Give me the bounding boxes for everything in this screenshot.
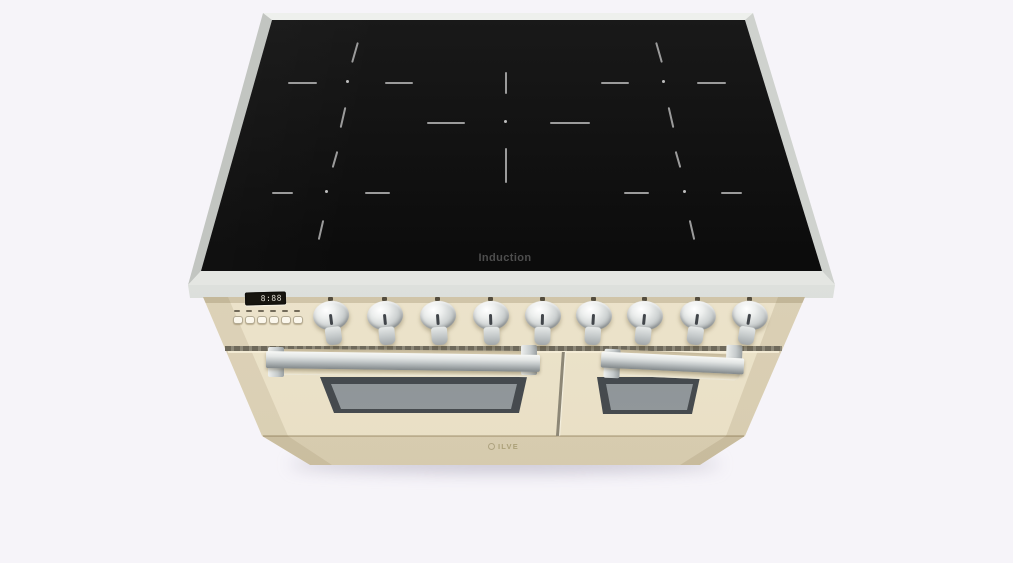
control-knob[interactable] <box>624 299 664 348</box>
zone-mark <box>272 192 293 194</box>
control-knob[interactable] <box>311 299 352 349</box>
panel-button[interactable] <box>245 316 255 324</box>
zone-mark <box>689 220 695 240</box>
panel-button[interactable] <box>269 316 279 324</box>
zone-mark <box>340 107 347 128</box>
button-icon <box>246 310 252 312</box>
zone-mark <box>365 192 390 194</box>
oven-clock-display: 8:88 <box>245 291 286 305</box>
control-knob[interactable] <box>524 301 561 348</box>
zone-mark <box>505 148 507 183</box>
range-cooker-product-image: Induction 8:88 <box>0 0 1013 563</box>
zone-center-dot <box>504 120 507 123</box>
zone-mark <box>550 122 590 124</box>
display-value: 8:88 <box>261 293 286 303</box>
brand-logo: ILVE <box>488 442 519 451</box>
zone-center-dot <box>346 80 349 83</box>
zone-center-dot <box>662 80 665 83</box>
cooktop-label: Induction <box>425 252 585 264</box>
button-icon <box>270 310 276 312</box>
logo-ring-icon <box>488 443 495 450</box>
control-knob[interactable] <box>727 298 770 349</box>
control-knob[interactable] <box>419 300 458 348</box>
button-icon <box>234 310 240 312</box>
button-icon <box>294 310 300 312</box>
zone-mark <box>721 192 742 194</box>
zone-mark <box>697 82 726 84</box>
control-knob[interactable] <box>473 300 511 347</box>
panel-button[interactable] <box>293 316 303 324</box>
zone-mark <box>318 220 324 240</box>
panel-button[interactable] <box>233 316 243 324</box>
zone-mark <box>427 122 465 124</box>
zone-mark <box>624 192 649 194</box>
control-knob[interactable] <box>676 299 718 349</box>
zone-mark <box>668 107 675 128</box>
zone-center-dot <box>683 190 686 193</box>
button-icon <box>258 310 264 312</box>
control-knob[interactable] <box>574 300 613 348</box>
zone-center-dot <box>325 190 328 193</box>
zone-mark <box>351 42 359 63</box>
panel-button[interactable] <box>257 316 267 324</box>
panel-button[interactable] <box>281 316 291 324</box>
zone-mark <box>601 82 629 84</box>
zone-mark <box>288 82 317 84</box>
zone-mark <box>655 42 663 63</box>
logo-text: ILVE <box>498 442 519 451</box>
zone-mark <box>385 82 413 84</box>
zone-mark <box>675 151 682 168</box>
button-icon <box>282 310 288 312</box>
zone-mark <box>332 151 339 168</box>
control-knob[interactable] <box>366 299 406 348</box>
zone-mark <box>505 72 507 94</box>
